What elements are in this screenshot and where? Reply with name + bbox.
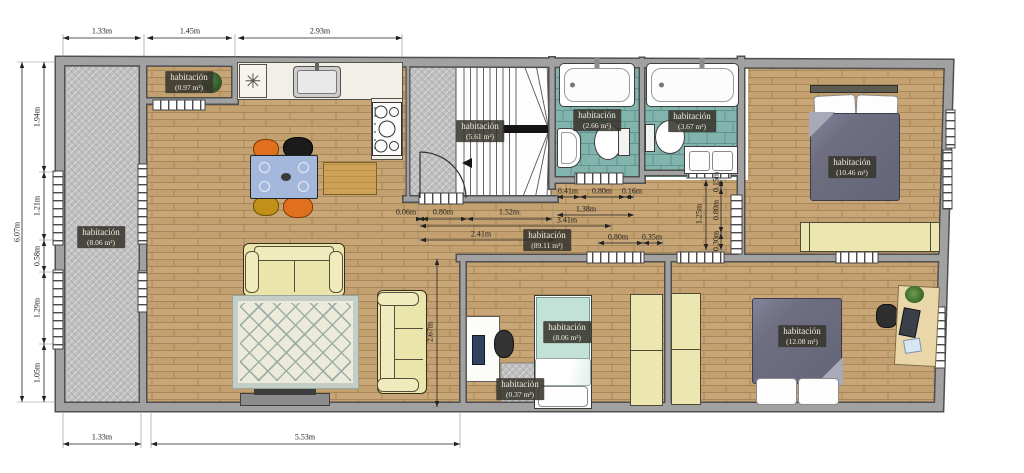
sofa-back <box>380 301 395 383</box>
kitchen-worktop <box>323 162 377 195</box>
plant-icon <box>905 286 924 303</box>
room-label-bathroom-2: habitación(3.67 m²) <box>668 110 716 132</box>
dimension-label: 0.30m <box>712 231 721 251</box>
kitchen-sink <box>293 66 341 98</box>
place-setting <box>298 162 309 173</box>
place-setting <box>259 162 270 173</box>
sofa <box>377 290 427 394</box>
dimension-label: 0.80m <box>608 233 628 242</box>
pillow <box>538 386 588 407</box>
room-label-bedroom-bottom-right: habitación(12.08 m²) <box>778 325 826 347</box>
dresser <box>800 222 940 252</box>
stove <box>372 102 402 156</box>
monitor <box>899 307 921 338</box>
sink-basin <box>689 151 710 171</box>
bathroom-sink <box>557 128 581 168</box>
dining-chair <box>253 196 279 216</box>
dimension-label: 1.25m <box>695 204 704 224</box>
panel-line <box>631 350 662 351</box>
headboard <box>810 85 898 93</box>
faucet-icon <box>315 62 319 71</box>
wardrobe <box>630 294 663 406</box>
sofa-armrest <box>329 251 343 293</box>
dimension-label: 0.15m <box>712 172 721 192</box>
kitchen-hob-cabinet: ✳ <box>239 64 267 98</box>
dimension-label: 1.21m <box>33 196 42 216</box>
cushion-divider <box>294 260 295 292</box>
room-label-living-kitchen-hall: habitación(89.11 m²) <box>523 229 571 251</box>
asterisk-symbol: ✳ <box>245 69 262 93</box>
sofa-armrest <box>245 251 259 293</box>
dimension-label: 2.93m <box>310 27 330 36</box>
dimension-label: 0.58m <box>33 246 42 266</box>
sink-basin <box>561 132 577 164</box>
notebook <box>903 338 922 354</box>
dimension-label: 1.94m <box>33 107 42 127</box>
dimension-label: 1.33m <box>92 433 112 442</box>
sink-basin <box>297 70 337 94</box>
cushion-divider <box>394 328 423 329</box>
floor-plan-canvas: ✳ <box>0 0 1024 473</box>
bathtub <box>559 63 635 107</box>
dimension-label: 3.41m <box>557 216 577 225</box>
room-label-bedroom-bottom-middle: habitación(8.06 m²) <box>543 321 591 343</box>
place-setting <box>259 181 270 192</box>
dimension-label: 0.80m <box>712 200 721 220</box>
faucet-icon <box>595 58 600 68</box>
rug-lattice <box>240 303 351 381</box>
area-rug <box>233 296 358 388</box>
dimension-label: 5.53m <box>295 433 315 442</box>
office-chair <box>876 304 898 328</box>
room-label-staircase: habitación(5.61 m²) <box>456 120 504 142</box>
monitor <box>472 335 485 365</box>
wardrobe <box>671 293 701 405</box>
dimension-label: 0.80m <box>592 187 612 196</box>
dimension-label: 0.06m <box>396 208 416 217</box>
duvet-fold <box>809 112 835 138</box>
sofa <box>243 243 345 297</box>
room-label-bathroom-1: habitación(2.66 m²) <box>573 109 621 131</box>
sofa-back <box>254 246 334 261</box>
dimension-label: 0.41m <box>558 187 578 196</box>
dimension-label: 0.35m <box>642 233 662 242</box>
faucet-icon <box>699 58 704 68</box>
dimension-label: 1.38m <box>576 205 596 214</box>
dimension-label: 1.52m <box>499 208 519 217</box>
panel-line <box>672 349 700 350</box>
toilet-tank <box>618 128 630 156</box>
dining-chair <box>283 196 313 218</box>
place-setting <box>298 181 309 192</box>
dimension-label: 2.41m <box>471 230 491 239</box>
dimension-label: 0.16m <box>622 187 642 196</box>
dimension-label: 1.33m <box>92 27 112 36</box>
room-label-closet-nook: habitación(0.37 m²) <box>496 378 544 400</box>
panel-line <box>930 223 931 251</box>
dimension-label: 1.29m <box>33 298 42 318</box>
dimension-label: 2.67m <box>426 322 435 342</box>
panel-line <box>809 223 810 251</box>
dimension-label: 0.80m <box>433 208 453 217</box>
dimension-label: 1.45m <box>180 27 200 36</box>
cushion-divider <box>394 359 423 360</box>
sink-basin <box>712 151 733 171</box>
room-label-gallery-left: habitación(8.06 m²) <box>77 226 125 248</box>
bathtub <box>646 63 739 107</box>
dining-table <box>250 155 318 199</box>
pillow <box>798 378 839 405</box>
centerpiece <box>281 173 291 181</box>
office-chair <box>494 330 514 358</box>
sofa-armrest <box>377 292 419 306</box>
sofa-armrest <box>377 378 419 392</box>
tv <box>254 389 316 395</box>
room-label-storage-top-left: habitación(0.97 m²) <box>165 71 213 93</box>
drain-icon <box>570 83 575 88</box>
drain-icon <box>659 83 664 88</box>
dimension-label: 6.07m <box>13 222 22 242</box>
pillow <box>756 378 797 405</box>
dimension-label: 1.05m <box>33 363 42 383</box>
toilet-tank <box>645 124 655 152</box>
double-vanity <box>684 146 738 174</box>
room-label-bedroom-top-right: habitación(10.46 m²) <box>828 156 876 178</box>
